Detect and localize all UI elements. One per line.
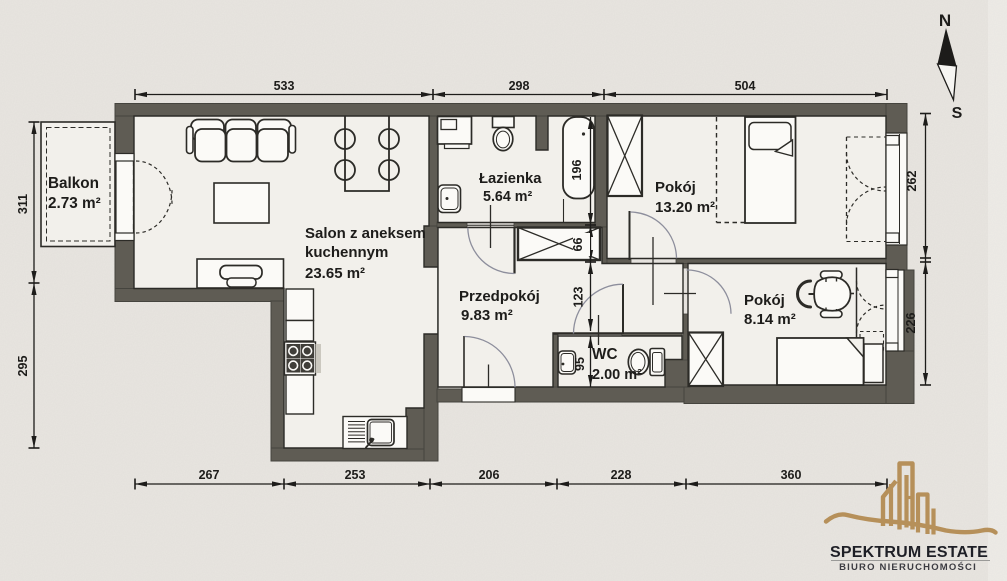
svg-text:360: 360 — [781, 468, 802, 482]
svg-text:Pokój: Pokój — [655, 179, 696, 196]
svg-text:295: 295 — [16, 356, 30, 377]
svg-text:Salon z aneksem: Salon z aneksem — [305, 225, 426, 242]
svg-text:206: 206 — [479, 468, 500, 482]
svg-text:23.65 m²: 23.65 m² — [305, 265, 365, 282]
svg-text:8.14 m²: 8.14 m² — [744, 311, 796, 328]
svg-text:5.64 m²: 5.64 m² — [483, 189, 533, 205]
svg-text:298: 298 — [509, 79, 530, 93]
svg-text:123: 123 — [572, 287, 586, 308]
svg-text:95: 95 — [573, 357, 587, 371]
svg-text:S: S — [952, 105, 963, 122]
svg-text:Przedpokój: Przedpokój — [459, 288, 540, 305]
svg-text:N: N — [939, 11, 951, 30]
svg-text:2.00 m²: 2.00 m² — [592, 367, 642, 383]
svg-text:2.73 m²: 2.73 m² — [48, 195, 101, 212]
svg-text:262: 262 — [905, 171, 919, 192]
svg-text:kuchennym: kuchennym — [305, 244, 388, 261]
svg-text:WC: WC — [592, 346, 618, 363]
svg-text:Pokój: Pokój — [744, 292, 785, 309]
svg-text:Balkon: Balkon — [48, 175, 99, 192]
svg-text:Łazienka: Łazienka — [479, 171, 542, 187]
svg-text:SPEKTRUM ESTATE: SPEKTRUM ESTATE — [830, 544, 988, 561]
svg-text:253: 253 — [345, 468, 366, 482]
svg-text:66: 66 — [571, 238, 585, 252]
svg-text:196: 196 — [570, 160, 584, 181]
svg-text:BIURO NIERUCHOMOŚCI: BIURO NIERUCHOMOŚCI — [839, 561, 977, 573]
svg-text:13.20 m²: 13.20 m² — [655, 199, 715, 216]
svg-text:311: 311 — [16, 194, 30, 214]
svg-text:9.83 m²: 9.83 m² — [461, 307, 513, 324]
svg-text:267: 267 — [199, 468, 220, 482]
svg-text:533: 533 — [274, 79, 295, 93]
svg-text:226: 226 — [904, 313, 918, 334]
svg-text:504: 504 — [735, 79, 756, 93]
svg-text:228: 228 — [611, 468, 632, 482]
